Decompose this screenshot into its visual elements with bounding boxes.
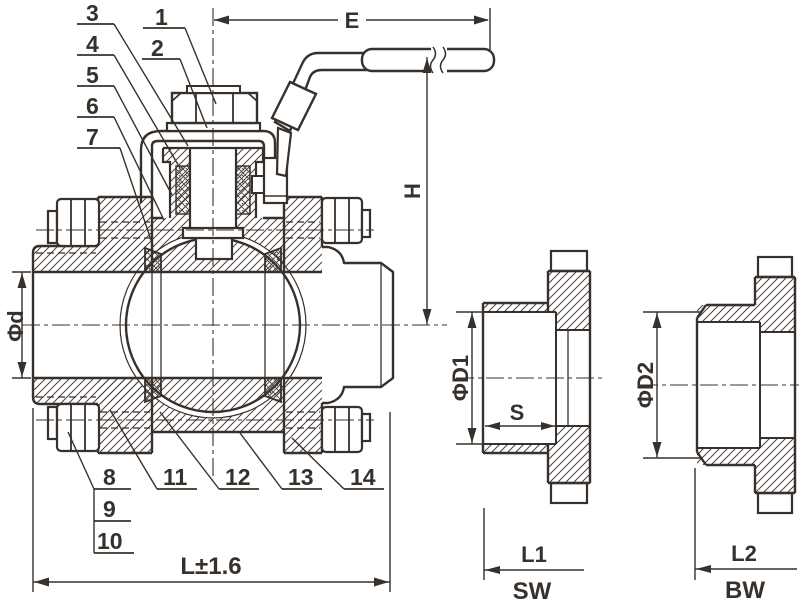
- part-label-13: 13: [288, 464, 314, 490]
- dim-label-bw: BW: [725, 577, 765, 603]
- arrow-phid-bottom: [18, 362, 27, 377]
- bw-lug-top: [758, 257, 792, 277]
- part-label-14: 14: [350, 464, 376, 490]
- part-label-10: 10: [97, 528, 123, 554]
- handle: [272, 45, 494, 176]
- packing-left: [176, 166, 190, 214]
- packing-right: [236, 166, 250, 214]
- arrow-l-left: [34, 578, 49, 587]
- stem-nut: [172, 93, 257, 123]
- arrow-e-right: [474, 16, 489, 25]
- sw-lug-bottom: [551, 483, 587, 503]
- technical-drawing-page: E H Φd L±1.6 ΦD1 S L1 SW ΦD2 L2 BW: [0, 0, 800, 603]
- left-stub-top-wall: [33, 246, 152, 272]
- part-label-2: 2: [151, 35, 164, 61]
- arrow-e-left: [214, 16, 229, 25]
- dim-label-h: H: [400, 183, 425, 199]
- arrow-phid2-top: [653, 313, 662, 328]
- arrow-phid-top: [18, 273, 27, 288]
- underlines-bottom: [94, 489, 384, 553]
- bolt-head-bl: [57, 404, 99, 451]
- arrow-l-right: [374, 578, 389, 587]
- bolt-head-tl: [57, 199, 99, 246]
- bolt-nut-tr: [322, 198, 362, 243]
- dim-label-l2: L2: [731, 541, 757, 566]
- dim-label-e: E: [345, 8, 360, 33]
- dim-label-phid1: ΦD1: [448, 355, 473, 401]
- part-label-1: 1: [155, 4, 168, 30]
- bw-lug-bottom: [758, 493, 792, 513]
- bolt-washer-br: [362, 414, 370, 441]
- dim-label-l: L±1.6: [180, 553, 241, 580]
- handle-lower-arm: [277, 128, 291, 176]
- part-label-9: 9: [103, 496, 116, 522]
- dim-label-sw: SW: [513, 578, 552, 603]
- part-label-3: 3: [86, 0, 99, 26]
- arrow-phid1-top: [468, 313, 477, 328]
- dim-label-l1: L1: [521, 542, 547, 567]
- sw-end-cap-detail: [483, 251, 590, 503]
- main-section-view: [33, 45, 494, 453]
- bolt-nut-br: [322, 407, 362, 452]
- sw-lug-top: [551, 251, 587, 271]
- bolt-washer-tl: [48, 211, 57, 243]
- dim-label-s: S: [510, 400, 525, 425]
- part-label-4: 4: [86, 31, 99, 57]
- arrow-l2: [696, 565, 711, 573]
- dim-label-phid: Φd: [3, 310, 28, 342]
- leader-4: [114, 55, 180, 168]
- arrow-phid1-bottom: [468, 428, 477, 443]
- part-label-8: 8: [103, 464, 116, 490]
- arrow-l1: [485, 566, 500, 574]
- part-label-5: 5: [86, 62, 99, 88]
- dim-label-phid2: ΦD2: [633, 362, 658, 408]
- part-label-7: 7: [86, 124, 99, 150]
- part-label-6: 6: [86, 93, 99, 119]
- part-label-12: 12: [225, 464, 251, 490]
- part-label-11: 11: [163, 464, 188, 490]
- bolt-washer-bl: [48, 407, 57, 439]
- bolt-washer-tr: [362, 210, 370, 237]
- ball-stem-slot: [196, 238, 232, 259]
- left-stub-bottom-wall: [33, 378, 152, 404]
- arrow-h-bottom: [423, 309, 432, 324]
- ball-valve-sectional-drawing: E H Φd L±1.6 ΦD1 S L1 SW ΦD2 L2 BW: [0, 0, 800, 603]
- arrow-phid2-bottom: [653, 442, 662, 457]
